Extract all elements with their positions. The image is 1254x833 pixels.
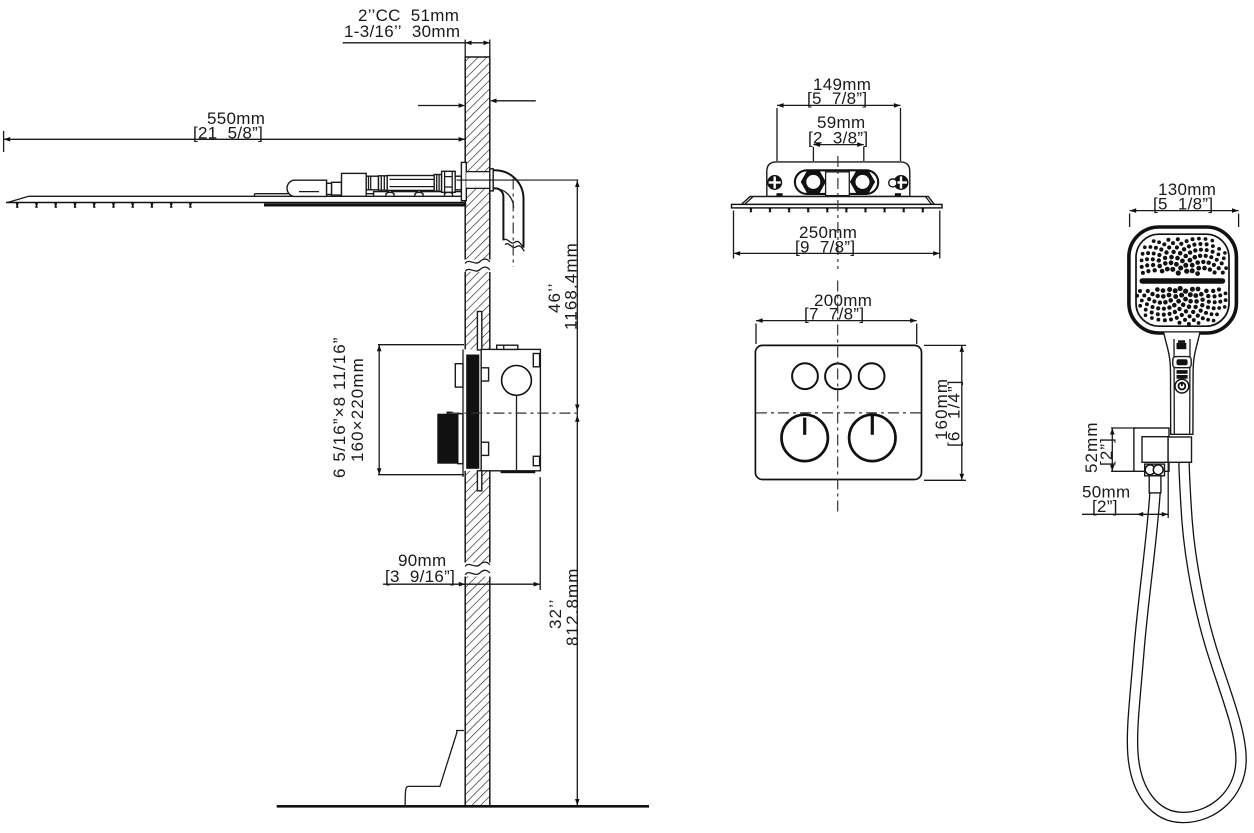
svg-text:812.8mm: 812.8mm bbox=[563, 567, 582, 646]
svg-text:[5 1/8”]: [5 1/8”] bbox=[1153, 195, 1213, 214]
svg-text:[2”]: [2”] bbox=[1092, 497, 1118, 516]
svg-text:6 5/16”×8 11/16”: 6 5/16”×8 11/16” bbox=[330, 336, 349, 478]
svg-text:[6 1/4”]: [6 1/4”] bbox=[945, 379, 964, 447]
svg-text:[2 3/8”]: [2 3/8”] bbox=[808, 129, 868, 148]
svg-text:1-3/16’’ 30mm: 1-3/16’’ 30mm bbox=[344, 22, 460, 41]
svg-text:[3 9/16”]: [3 9/16”] bbox=[385, 567, 455, 586]
svg-text:1168.4mm: 1168.4mm bbox=[562, 242, 581, 330]
svg-text:[7 7/8”]: [7 7/8”] bbox=[804, 305, 864, 324]
svg-text:[2”]: [2”] bbox=[1097, 437, 1116, 466]
svg-text:[21 5/8”]: [21 5/8”] bbox=[193, 124, 263, 143]
svg-text:160×220mm: 160×220mm bbox=[348, 357, 367, 462]
svg-text:[9 7/8”]: [9 7/8”] bbox=[795, 238, 855, 257]
svg-text:[5 7/8”]: [5 7/8”] bbox=[807, 89, 867, 108]
